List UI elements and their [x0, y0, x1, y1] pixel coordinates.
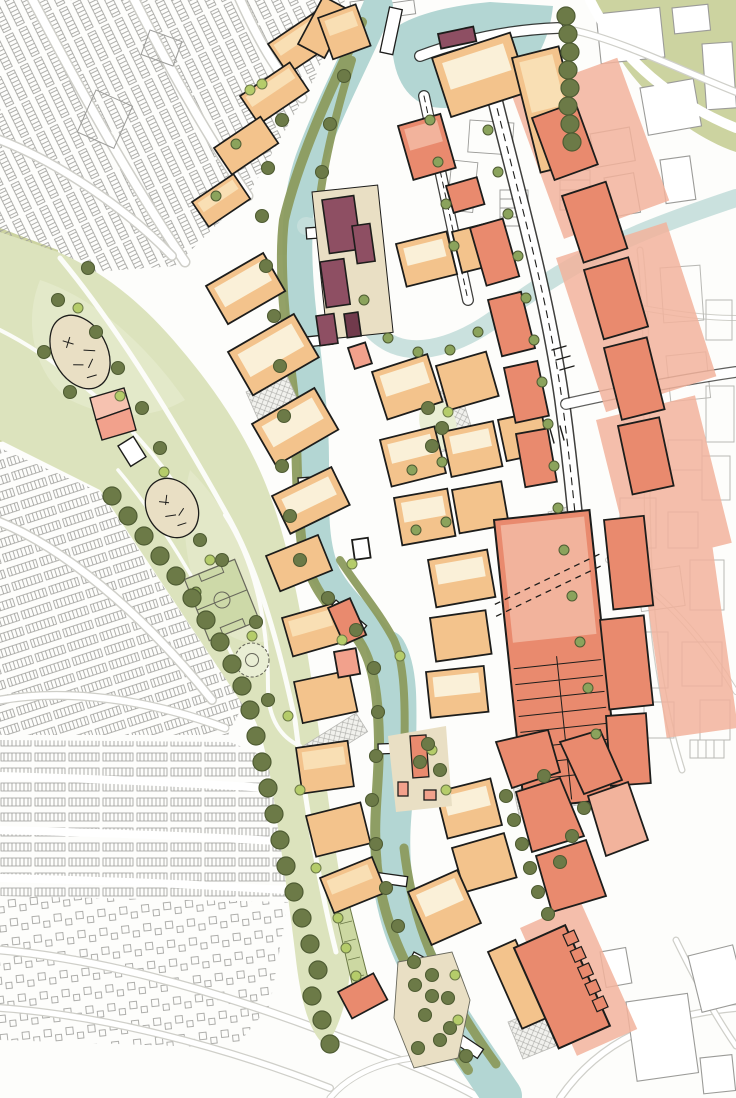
masterplan-svg [0, 0, 736, 1098]
masterplan-map [0, 0, 736, 1098]
existing-terraces-southwest [0, 740, 302, 1048]
